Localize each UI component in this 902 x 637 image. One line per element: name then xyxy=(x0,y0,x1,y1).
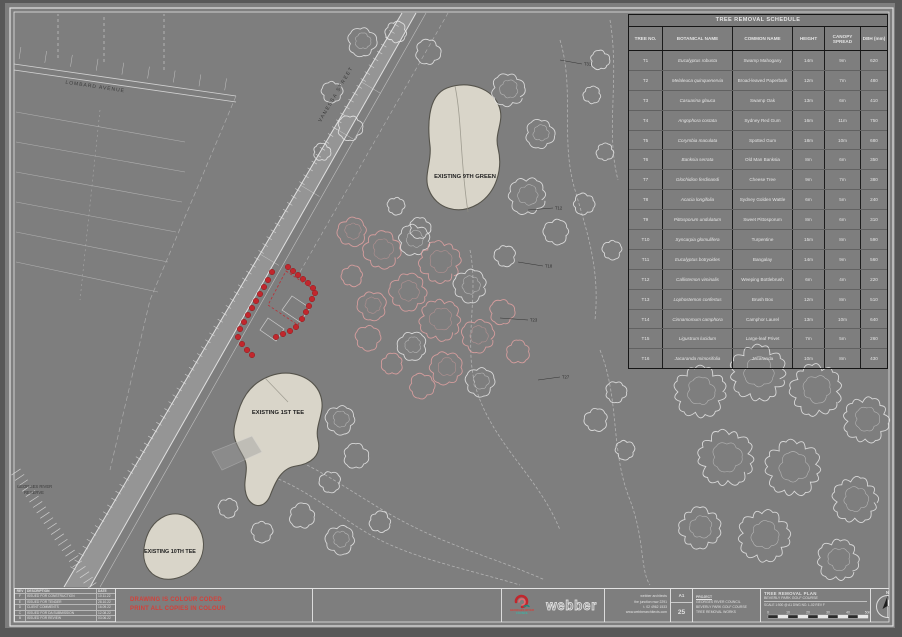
tree-tag-label: T31 xyxy=(584,62,592,67)
schedule-cell: 15m xyxy=(793,230,825,249)
schedule-cell: Swamp Oak xyxy=(733,91,793,110)
schedule-cell: 5m xyxy=(825,329,861,348)
sheet-size: A1 xyxy=(671,589,692,604)
schedule-cell: 6m xyxy=(825,91,861,110)
schedule-cell: 240 xyxy=(861,190,887,209)
schedule-row: T10Syncarpia glomuliferaTurpentine15m8m5… xyxy=(629,230,887,250)
schedule-cell: Broad-leaved Paperbark xyxy=(733,71,793,90)
tree-tag-label: T27 xyxy=(562,375,570,380)
scale-label: 20 xyxy=(806,610,810,614)
reserve-label-line2: RESERVE xyxy=(24,490,44,495)
revision-cell: C xyxy=(15,611,26,616)
schedule-cell: 6m xyxy=(825,150,861,169)
schedule-row: T1Eucalyptus robustaSwamp Mahogany14m9m6… xyxy=(629,51,887,71)
schedule-cell: T12 xyxy=(629,270,663,289)
schedule-cell: 620 xyxy=(861,51,887,70)
schedule-title: TREE REMOVAL SCHEDULE xyxy=(628,14,888,27)
schedule-cell: Callistemon viminalis xyxy=(663,270,733,289)
revision-table: REVDESCRIPTIONDATEFISSUED FOR CONSTRUCTI… xyxy=(14,589,115,622)
schedule-cell: 8m xyxy=(793,210,825,229)
schedule-cell: 10m xyxy=(793,349,825,368)
schedule-header-cell: CANOPY SPREAD xyxy=(825,27,861,50)
schedule-cell: Old Man Banksia xyxy=(733,150,793,169)
schedule-cell: Cheese Tree xyxy=(733,170,793,189)
revision-cell: 12.08.22 xyxy=(97,611,115,616)
schedule-cell: Jacaranda xyxy=(733,349,793,368)
fence-tick-rows xyxy=(11,23,398,588)
revision-cell: 10.11.22 xyxy=(97,594,115,599)
schedule-cell: 590 xyxy=(861,230,887,249)
schedule-cell: T14 xyxy=(629,310,663,329)
schedule-row: T9Pittosporum undulatumSweet Pittosporum… xyxy=(629,210,887,230)
schedule-cell: Acacia longifolia xyxy=(663,190,733,209)
schedule-header-cell: DBH (mm) xyxy=(861,27,887,50)
schedule-cell: Angophora costata xyxy=(663,111,733,130)
schedule-row: T12Callistemon viminalisWeeping Bottlebr… xyxy=(629,270,887,290)
schedule-cell: Turpentine xyxy=(733,230,793,249)
schedule-cell: 260 xyxy=(861,329,887,348)
drawing-sheet: T12T18T23T27T31 EXISTING 9TH GREEN EXIST… xyxy=(0,0,902,637)
schedule-cell: 11m xyxy=(825,111,861,130)
project-line: TREE REMOVAL WORKS xyxy=(696,610,760,615)
tee-10-label: EXISTING 10TH TEE xyxy=(144,549,196,555)
schedule-cell: 7m xyxy=(825,71,861,90)
project-info-block: PROJECTGEORGES RIVER COUNCILBEVERLY PARK… xyxy=(692,589,760,622)
schedule-cell: 14m xyxy=(793,250,825,269)
lot-boundaries xyxy=(16,96,236,470)
schedule-header-cell: HEIGHT xyxy=(793,27,825,50)
schedule-cell: T13 xyxy=(629,290,663,309)
schedule-row: T6Banksia serrataOld Man Banksia8m6m350 xyxy=(629,150,887,170)
schedule-cell: Spotted Gum xyxy=(733,131,793,150)
schedule-cell: T7 xyxy=(629,170,663,189)
schedule-cell: T6 xyxy=(629,150,663,169)
schedule-cell: 12m xyxy=(793,290,825,309)
colour-warning-note: DRAWING IS COLOUR CODED PRINT ALL COPIES… xyxy=(115,589,312,622)
schedule-cell: 430 xyxy=(861,349,887,368)
schedule-cell: Eucalyptus robusta xyxy=(663,51,733,70)
revision-cell: ISSUED FOR REVIEW xyxy=(26,616,97,621)
revision-cell: D xyxy=(15,605,26,610)
blank-panel xyxy=(312,589,501,622)
schedule-cell: Sweet Pittosporum xyxy=(733,210,793,229)
revision-cell: DESCRIPTION xyxy=(26,589,97,594)
schedule-cell: 10m xyxy=(825,310,861,329)
warning-line: PRINT ALL COPIES IN COLOUR xyxy=(130,605,312,614)
tree-removal-schedule: TREE REMOVAL SCHEDULE TREE NO. BOTANICAL… xyxy=(628,14,888,369)
schedule-cell: 4m xyxy=(825,270,861,289)
schedule-row: T15Ligustrum lucidumLarge-leaf Privet7m5… xyxy=(629,329,887,349)
schedule-cell: Jacaranda mimosifolia xyxy=(663,349,733,368)
schedule-cell: Camphor Laurel xyxy=(733,310,793,329)
schedule-cell: 310 xyxy=(861,210,887,229)
schedule-cell: Sydney Red Gum xyxy=(733,111,793,130)
schedule-cell: 6m xyxy=(825,210,861,229)
schedule-cell: Cinnamomum camphora xyxy=(663,310,733,329)
schedule-cell: Brush Box xyxy=(733,290,793,309)
schedule-cell: 560 xyxy=(861,250,887,269)
scale-label: 30 xyxy=(826,610,830,614)
schedule-cell: Ligustrum lucidum xyxy=(663,329,733,348)
schedule-cell: 220 xyxy=(861,270,887,289)
schedule-cell: 510 xyxy=(861,290,887,309)
council-logo: GEORGES RIVER COUNCIL xyxy=(502,594,539,616)
schedule-cell: Swamp Mahogany xyxy=(733,51,793,70)
revision-cell: B xyxy=(15,616,26,621)
revision-cell: REV xyxy=(15,589,26,594)
tee-1-label: EXISTING 1ST TEE xyxy=(252,410,304,416)
schedule-cell: 12m xyxy=(793,71,825,90)
schedule-cell: 750 xyxy=(861,111,887,130)
schedule-header-row: TREE NO. BOTANICAL NAME COMMON NAME HEIG… xyxy=(629,27,887,51)
schedule-cell: Pittosporum undulatum xyxy=(663,210,733,229)
architect-contact-block: webber architectsthe junction nsw 2291t.… xyxy=(604,589,670,622)
title-block: REVDESCRIPTIONDATEFISSUED FOR CONSTRUCTI… xyxy=(14,588,889,622)
drawing-info-block: TREE REMOVAL PLAN BEVERLY PARK GOLF COUR… xyxy=(760,589,870,622)
schedule-cell: 680 xyxy=(861,131,887,150)
tree-tag-label: T23 xyxy=(530,318,538,323)
logo-panel: GEORGES RIVER COUNCIL webber xyxy=(501,589,604,622)
schedule-row: T4Angophora costataSydney Red Gum16m11m7… xyxy=(629,111,887,131)
schedule-cell: T8 xyxy=(629,190,663,209)
schedule-cell: 8m xyxy=(825,290,861,309)
schedule-cell: T9 xyxy=(629,210,663,229)
revision-cell: 28.10.22 xyxy=(97,600,115,605)
schedule-cell: Large-leaf Privet xyxy=(733,329,793,348)
schedule-cell: 8m xyxy=(793,150,825,169)
revision-cell: CLIENT COMMENTS xyxy=(26,605,97,610)
revision-cell: E xyxy=(15,600,26,605)
schedule-cell: Casuarina glauca xyxy=(663,91,733,110)
schedule-cell: T2 xyxy=(629,71,663,90)
schedule-cell: Banksia serrata xyxy=(663,150,733,169)
scale-label: 40 xyxy=(846,610,850,614)
schedule-cell: T5 xyxy=(629,131,663,150)
schedule-cell: 350 xyxy=(861,150,887,169)
sheet-size-panel: A1 25 xyxy=(670,589,692,622)
schedule-cell: Corymbia maculata xyxy=(663,131,733,150)
schedule-cell: Lophostemon confertus xyxy=(663,290,733,309)
revision-row: BISSUED FOR REVIEW03.06.22 xyxy=(15,616,115,621)
contact-line: www.webberarchitects.com xyxy=(626,610,667,615)
tree-tag-leaders: T12T18T23T27T31 xyxy=(500,60,592,380)
council-name-2: COUNCIL xyxy=(516,613,528,616)
schedule-cell: 6m xyxy=(793,190,825,209)
schedule-cell: 7m xyxy=(825,170,861,189)
schedule-grid: TREE NO. BOTANICAL NAME COMMON NAME HEIG… xyxy=(628,27,888,369)
north-arrow-icon: N xyxy=(871,589,889,622)
schedule-cell: 14m xyxy=(793,51,825,70)
scale-label: 0 xyxy=(767,610,769,614)
sheet-number: 25 xyxy=(671,603,692,621)
schedule-cell: T10 xyxy=(629,230,663,249)
schedule-cell: Melaleuca quinquenervia xyxy=(663,71,733,90)
schedule-cell: T11 xyxy=(629,250,663,269)
schedule-cell: Syncarpia glomulifera xyxy=(663,230,733,249)
warning-line: DRAWING IS COLOUR CODED xyxy=(130,596,312,605)
schedule-cell: T16 xyxy=(629,349,663,368)
schedule-cell: 380 xyxy=(861,170,887,189)
reserve-label-line1: GEORGES RIVER xyxy=(17,484,52,489)
north-arrow-panel: N xyxy=(870,589,889,622)
revision-cell: ISSUED FOR CONSTRUCTION xyxy=(26,594,97,599)
schedule-row: T3Casuarina glaucaSwamp Oak13m6m410 xyxy=(629,91,887,111)
schedule-cell: Weeping Bottlebrush xyxy=(733,270,793,289)
scale-bar: 01020304050m xyxy=(764,609,870,620)
revision-cell: F xyxy=(15,594,26,599)
schedule-cell: T15 xyxy=(629,329,663,348)
schedule-header-cell: TREE NO. xyxy=(629,27,663,50)
schedule-row: T2Melaleuca quinquenerviaBroad-leaved Pa… xyxy=(629,71,887,91)
schedule-row: T7Glochidion ferdinandiCheese Tree9m7m38… xyxy=(629,170,887,190)
tree-tag-label: T12 xyxy=(555,206,563,211)
schedule-cell: Sydney Golden Wattle xyxy=(733,190,793,209)
schedule-cell: 9m xyxy=(825,250,861,269)
schedule-cell: 10m xyxy=(825,131,861,150)
schedule-cell: 8m xyxy=(825,349,861,368)
schedule-cell: 9m xyxy=(825,51,861,70)
schedule-cell: 410 xyxy=(861,91,887,110)
schedule-row: T14Cinnamomum camphoraCamphor Laurel13m1… xyxy=(629,310,887,330)
schedule-cell: Eucalyptus botryoides xyxy=(663,250,733,269)
drawing-meta: SCALE 1:500 @ A1 DWG NO. L-02 REV F xyxy=(764,603,867,607)
webber-logo: webber xyxy=(539,598,604,613)
schedule-cell: 8m xyxy=(825,230,861,249)
revision-cell: DATE xyxy=(97,589,115,594)
schedule-cell: 9m xyxy=(793,170,825,189)
schedule-cell: 18m xyxy=(793,131,825,150)
schedule-cell: 13m xyxy=(793,310,825,329)
tree-tag-label: T18 xyxy=(545,264,553,269)
schedule-cell: 16m xyxy=(793,111,825,130)
schedule-cell: 5m xyxy=(825,190,861,209)
scale-label: 10 xyxy=(786,610,790,614)
schedule-cell: 13m xyxy=(793,91,825,110)
tee-10-surface xyxy=(144,514,204,579)
schedule-header-cell: BOTANICAL NAME xyxy=(663,27,733,50)
schedule-header-cell: COMMON NAME xyxy=(733,27,793,50)
schedule-cell: Glochidion ferdinandi xyxy=(663,170,733,189)
schedule-cell: 7m xyxy=(793,329,825,348)
drawing-subtitle: BEVERLY PARK GOLF COURSE xyxy=(764,596,867,602)
schedule-row: T5Corymbia maculataSpotted Gum18m10m680 xyxy=(629,131,887,151)
schedule-cell: Bangalay xyxy=(733,250,793,269)
schedule-cell: 640 xyxy=(861,310,887,329)
green-9-label: EXISTING 9TH GREEN xyxy=(434,174,496,180)
schedule-row: T8Acacia longifoliaSydney Golden Wattle6… xyxy=(629,190,887,210)
revision-cell: 16.09.22 xyxy=(97,605,115,610)
schedule-row: T11Eucalyptus botryoidesBangalay14m9m560 xyxy=(629,250,887,270)
schedule-row: T16Jacaranda mimosifoliaJacaranda10m8m43… xyxy=(629,349,887,368)
north-label: N xyxy=(886,590,889,595)
schedule-cell: T3 xyxy=(629,91,663,110)
schedule-cell: 6m xyxy=(793,270,825,289)
schedule-body: T1Eucalyptus robustaSwamp Mahogany14m9m6… xyxy=(629,51,887,368)
revision-cell: ISSUED FOR TENDER xyxy=(26,600,97,605)
schedule-cell: T4 xyxy=(629,111,663,130)
schedule-cell: T1 xyxy=(629,51,663,70)
schedule-row: T13Lophostemon confertusBrush Box12m8m51… xyxy=(629,290,887,310)
schedule-cell: 480 xyxy=(861,71,887,90)
revision-cell: ISSUED FOR DA SUBMISSION xyxy=(26,611,97,616)
revision-cell: 03.06.22 xyxy=(97,616,115,621)
green-9-surface xyxy=(427,85,501,210)
council-logo-icon xyxy=(513,594,531,609)
